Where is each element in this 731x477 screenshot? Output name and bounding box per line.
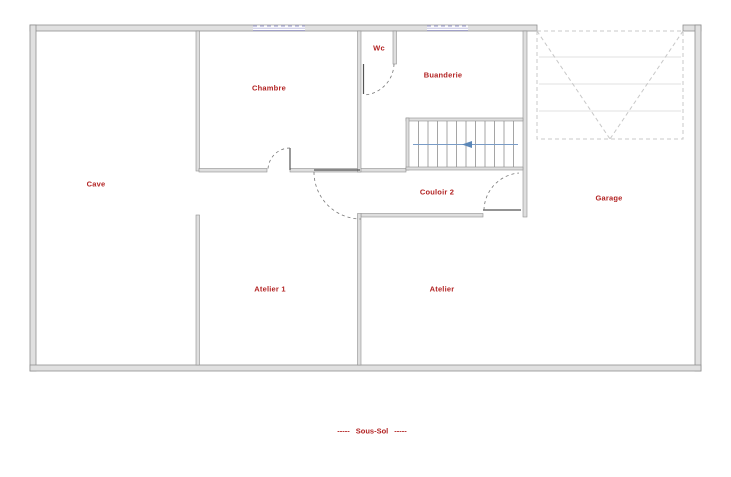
- room-label-garage: Garage: [595, 194, 622, 203]
- window-buanderie: [427, 25, 468, 30]
- wall-chambre-south-left: [199, 169, 267, 173]
- doors: [268, 64, 521, 219]
- door-couloir-west: [314, 170, 361, 219]
- window-chambre: [253, 25, 305, 30]
- room-label-atelier: Atelier: [430, 285, 455, 294]
- stair-wall-top: [406, 118, 523, 121]
- stair-wall-left: [406, 118, 409, 170]
- room-label-cave: Cave: [87, 180, 106, 189]
- garage-door-swing: [537, 31, 683, 139]
- door-chambre: [268, 148, 290, 170]
- floor-title-text: Sous-Sol: [356, 427, 389, 436]
- wall-wc-right: [393, 31, 397, 64]
- wall-garage-left: [523, 31, 527, 217]
- staircase: [406, 118, 523, 170]
- wall-cave-atelier1: [196, 215, 200, 365]
- floor-plan-drawing: [0, 0, 731, 477]
- interior-walls: [196, 31, 527, 365]
- room-label-buanderie: Buanderie: [424, 71, 462, 80]
- room-label-couloir: Couloir 2: [420, 188, 454, 197]
- floor-title-dashes-right: -----: [394, 427, 407, 436]
- floor-title: -----Sous-Sol-----: [334, 427, 410, 436]
- wall-bottom: [30, 365, 701, 371]
- room-label-wc: Wc: [373, 44, 385, 53]
- garage-door-panels: [539, 57, 681, 111]
- wall-couloir-south: [361, 214, 483, 218]
- stair-direction-arrow: [413, 141, 518, 148]
- wall-right: [695, 25, 701, 371]
- wall-left: [30, 25, 36, 371]
- wall-atelier1-atelier: [358, 214, 362, 366]
- door-couloir-atelier: [483, 173, 521, 210]
- stair-wall-bottom: [406, 167, 523, 170]
- wall-chambre-wc: [358, 31, 362, 172]
- arrow-left-icon: [462, 141, 472, 148]
- floor-title-dashes-left: -----: [337, 427, 350, 436]
- room-label-chambre: Chambre: [252, 84, 286, 93]
- room-label-atelier1: Atelier 1: [254, 285, 285, 294]
- floor-plan: Cave Chambre Wc Buanderie Couloir 2 Gara…: [0, 0, 731, 477]
- garage-door: [537, 31, 683, 139]
- door-wc: [364, 64, 395, 95]
- wall-cave-chambre: [196, 31, 200, 171]
